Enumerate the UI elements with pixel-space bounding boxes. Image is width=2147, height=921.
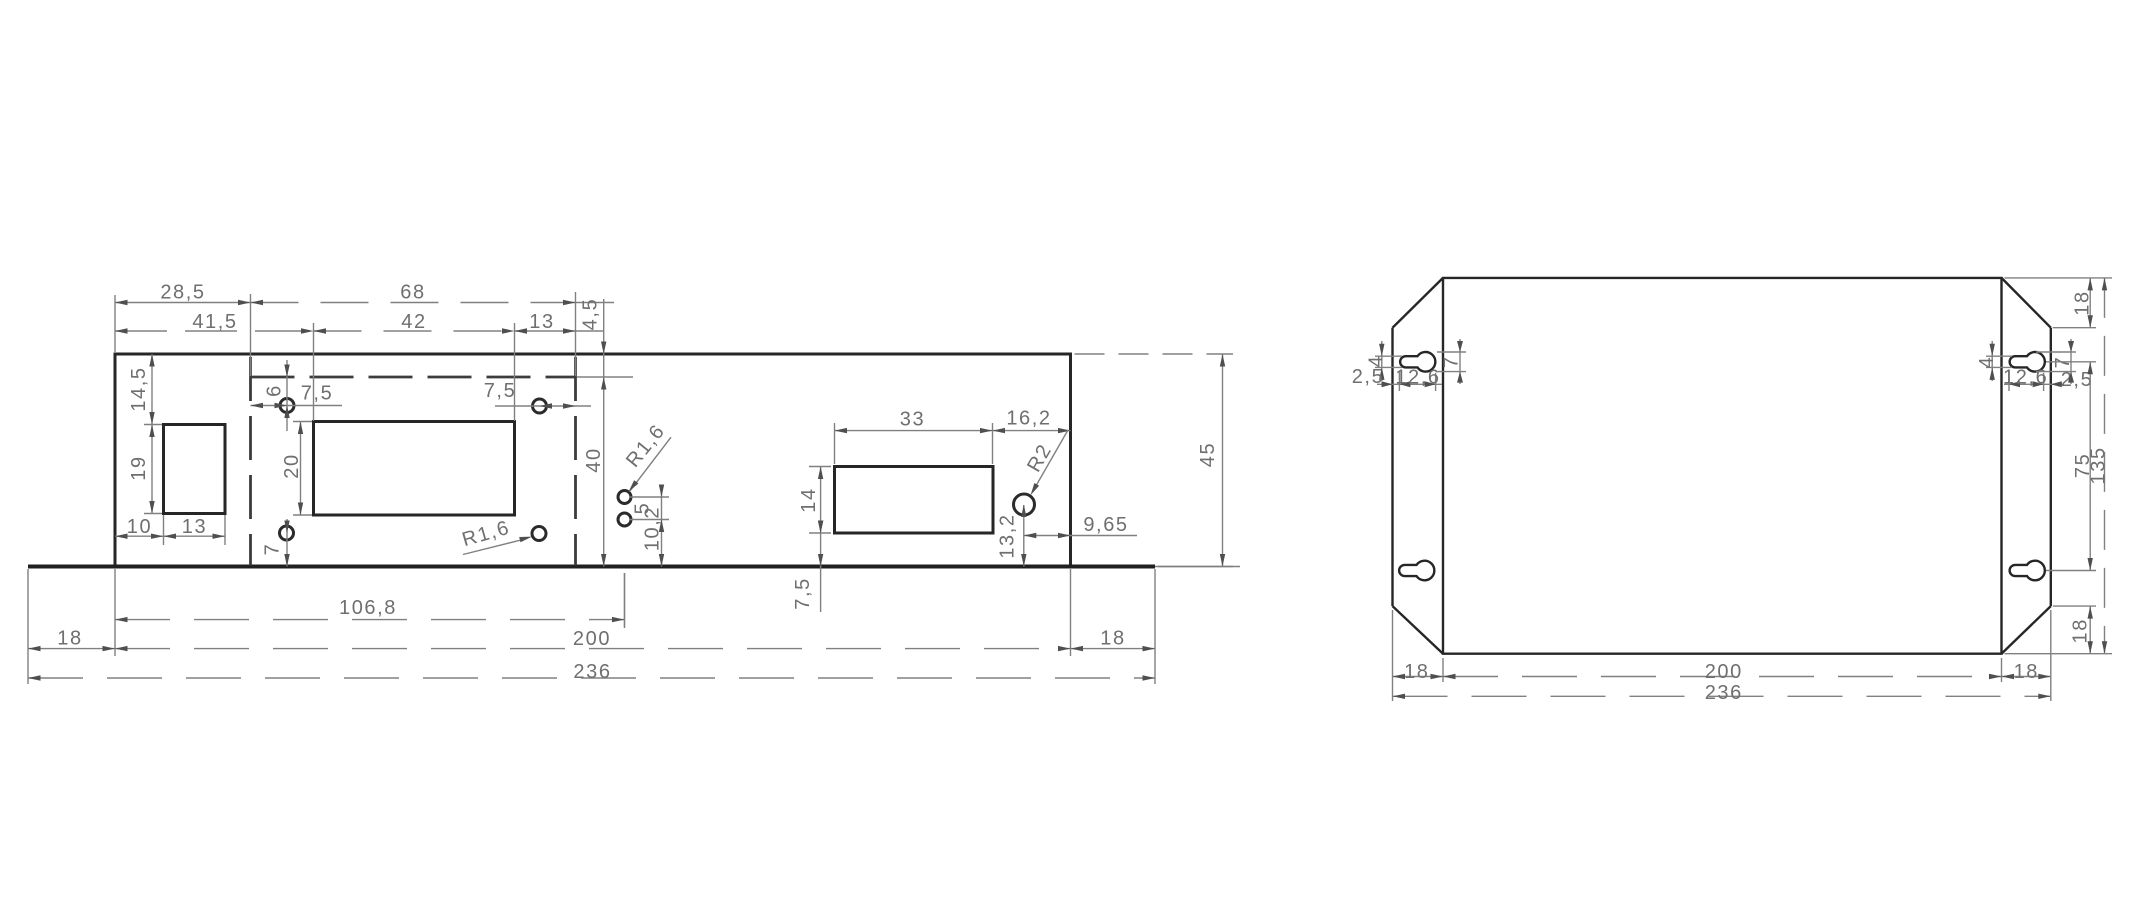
svg-text:7,5: 7,5 xyxy=(484,380,517,402)
svg-text:16,2: 16,2 xyxy=(1006,408,1051,430)
svg-text:4: 4 xyxy=(1976,356,1998,369)
svg-text:106,8: 106,8 xyxy=(339,597,397,619)
svg-text:236: 236 xyxy=(573,661,611,683)
svg-text:7: 7 xyxy=(262,543,284,556)
svg-text:R2: R2 xyxy=(1023,440,1056,476)
svg-text:18: 18 xyxy=(1404,661,1429,683)
svg-text:33: 33 xyxy=(900,409,925,431)
svg-text:45: 45 xyxy=(1197,442,1219,467)
svg-text:236: 236 xyxy=(1705,682,1743,704)
svg-text:13: 13 xyxy=(182,516,207,538)
svg-text:200: 200 xyxy=(1705,661,1743,683)
svg-text:200: 200 xyxy=(573,628,611,650)
svg-text:R1,6: R1,6 xyxy=(622,420,670,472)
svg-text:6: 6 xyxy=(264,384,286,397)
svg-text:20: 20 xyxy=(281,453,303,478)
svg-text:135: 135 xyxy=(2087,446,2109,484)
svg-text:9,65: 9,65 xyxy=(1083,514,1128,536)
svg-text:10,2: 10,2 xyxy=(642,506,664,551)
svg-text:R1,6: R1,6 xyxy=(460,517,513,552)
svg-text:2,5: 2,5 xyxy=(1352,366,1385,388)
svg-text:13: 13 xyxy=(529,311,554,333)
svg-text:18: 18 xyxy=(2014,661,2039,683)
svg-text:7,5: 7,5 xyxy=(792,577,814,610)
svg-text:18: 18 xyxy=(57,628,82,650)
svg-text:68: 68 xyxy=(400,282,425,304)
svg-text:18: 18 xyxy=(2071,290,2093,315)
svg-text:4,5: 4,5 xyxy=(580,298,602,331)
svg-text:7: 7 xyxy=(1441,355,1463,368)
svg-text:41,5: 41,5 xyxy=(192,311,237,333)
svg-text:7,5: 7,5 xyxy=(301,383,334,405)
svg-text:18: 18 xyxy=(1100,627,1125,649)
svg-text:13,2: 13,2 xyxy=(997,513,1019,558)
svg-text:28,5: 28,5 xyxy=(160,282,205,304)
svg-text:10: 10 xyxy=(127,516,152,538)
svg-text:14,5: 14,5 xyxy=(128,366,150,411)
svg-text:18: 18 xyxy=(2070,618,2092,643)
svg-text:42: 42 xyxy=(401,311,426,333)
svg-text:14: 14 xyxy=(798,487,820,512)
svg-text:40: 40 xyxy=(583,447,605,472)
svg-text:19: 19 xyxy=(128,455,150,480)
svg-text:12,6: 12,6 xyxy=(2003,367,2048,389)
svg-text:12,6: 12,6 xyxy=(1395,367,1440,389)
